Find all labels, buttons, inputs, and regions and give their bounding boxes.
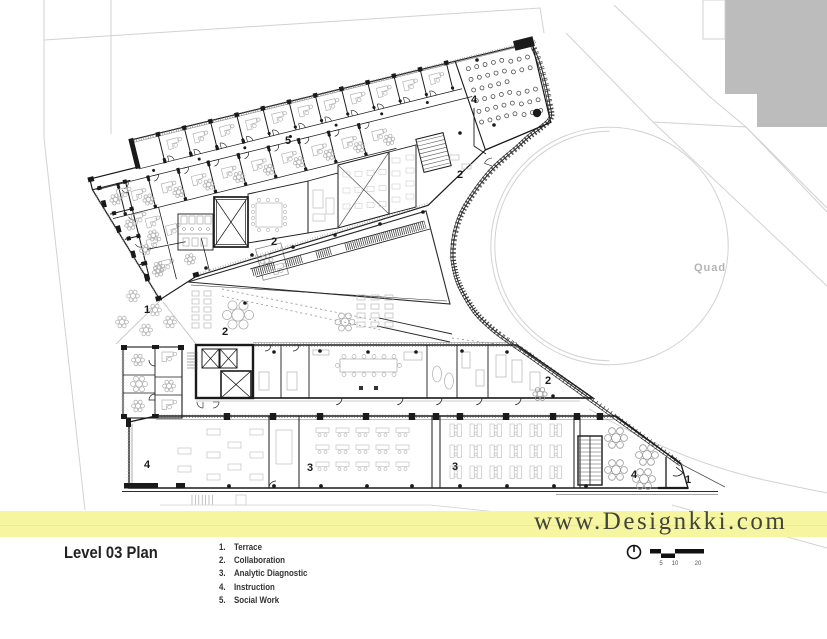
svg-text:1: 1 (685, 474, 691, 486)
svg-text:2: 2 (222, 326, 228, 338)
svg-text:Quad: Quad (694, 262, 726, 274)
svg-text:4: 4 (631, 469, 638, 481)
svg-text:2: 2 (545, 375, 551, 387)
svg-text:3: 3 (307, 462, 313, 474)
svg-text:2: 2 (457, 169, 463, 181)
svg-text:2: 2 (271, 236, 277, 248)
svg-text:4: 4 (144, 459, 151, 471)
svg-text:5: 5 (659, 561, 663, 567)
svg-text:1: 1 (144, 304, 150, 316)
svg-text:3: 3 (452, 461, 458, 473)
svg-text:4: 4 (471, 94, 478, 106)
svg-text:5: 5 (285, 135, 291, 147)
svg-text:20: 20 (695, 561, 702, 567)
svg-text:10: 10 (672, 561, 679, 567)
